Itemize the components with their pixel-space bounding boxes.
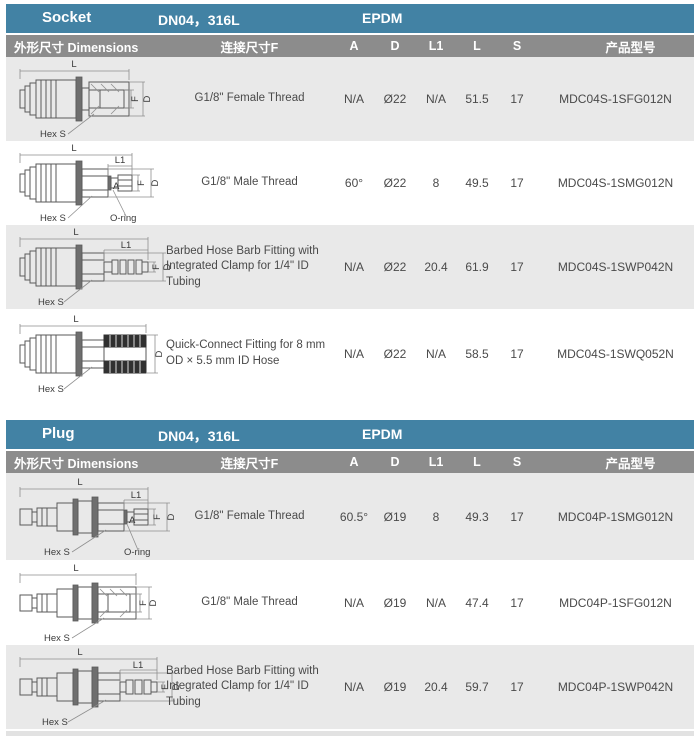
dim-label-d: D	[154, 350, 165, 357]
hex-s-label: Hex S	[40, 213, 66, 224]
technical-drawing-socket-female: L F D Hex S	[14, 57, 174, 141]
dim-label-f: F	[151, 264, 162, 270]
section-title: Plug	[42, 425, 75, 442]
socket-column-header: 外形尺寸 Dimensions 连接尺寸F A D L1 L S 产品型号	[6, 35, 694, 57]
cell-l1: N/A	[415, 596, 457, 610]
dim-label-a: A	[113, 181, 120, 192]
cell-a: 60°	[333, 176, 375, 190]
technical-drawing-socket-barb: L L1 F D Hex S	[14, 225, 174, 309]
cell-drawing: L L1 A F D Hex S O-ring	[6, 141, 166, 225]
table-row: L F D Hex S G1/8" Male Thread N/A Ø19 N/…	[6, 560, 694, 645]
cell-thread-desc: G1/8" Female Thread	[166, 509, 333, 525]
dim-label-l1: L1	[131, 490, 142, 501]
socket-section: Socket DN04，316L EPDM 外形尺寸 Dimensions 连接…	[6, 4, 694, 398]
seal-label: EPDM	[362, 426, 402, 442]
col-dimensions: 外形尺寸 Dimensions	[6, 37, 166, 56]
coupler-body	[20, 161, 82, 205]
dim-label-l: L	[77, 647, 82, 658]
col-a: A	[333, 39, 375, 53]
dim-label-l: L	[73, 227, 78, 238]
cell-l1: N/A	[415, 347, 457, 361]
coupler-body	[20, 667, 98, 707]
cell-d: Ø22	[375, 176, 415, 190]
cell-drawing: L L1 F D Hex S	[6, 645, 166, 729]
coupler-body	[20, 245, 82, 289]
next-section-edge	[6, 731, 694, 736]
socket-section-header: Socket DN04，316L EPDM	[6, 4, 694, 33]
technical-drawing-plug-barb: L L1 F D Hex S	[14, 645, 174, 729]
thread-desc: Quick-Connect Fitting for 8 mm OD × 5.5 …	[166, 338, 333, 369]
cell-s: 17	[497, 347, 537, 361]
cell-product-code: MDC04S-1SMG012N	[537, 176, 694, 190]
cell-l1: 8	[415, 510, 457, 524]
table-row: L L1 F D Hex S Barbed Hose Barb Fitting …	[6, 225, 694, 309]
col-a: A	[333, 455, 375, 469]
cell-d: Ø19	[375, 510, 415, 524]
cell-l: 49.5	[457, 176, 497, 190]
dim-label-l: L	[71, 59, 76, 70]
dim-label-l: L	[73, 314, 78, 325]
technical-drawing-socket-quick-connect: L D Hex S	[14, 312, 174, 396]
cell-d: Ø19	[375, 596, 415, 610]
cell-drawing: L F D Hex S	[6, 561, 166, 645]
dim-label-l: L	[73, 563, 78, 574]
thread-desc: Barbed Hose Barb Fitting with Integrated…	[166, 244, 333, 291]
col-product: 产品型号	[537, 453, 694, 472]
cell-thread-desc: Quick-Connect Fitting for 8 mm OD × 5.5 …	[166, 338, 333, 369]
hex-s-label: Hex S	[40, 129, 66, 140]
cell-d: Ø19	[375, 680, 415, 694]
table-row: L D Hex S Quick-Connect Fitting for 8 mm…	[6, 309, 694, 398]
cell-a: N/A	[333, 347, 375, 361]
cell-thread-desc: G1/8" Male Thread	[166, 175, 333, 191]
cell-drawing: L L1 A F D Hex S O-ring	[6, 475, 166, 559]
col-d: D	[375, 39, 415, 53]
cell-l1: 20.4	[415, 680, 457, 694]
cell-thread-desc: Barbed Hose Barb Fitting with Integrated…	[166, 664, 333, 711]
cell-a: N/A	[333, 260, 375, 274]
cell-a: 60.5°	[333, 510, 375, 524]
col-thread: 连接尺寸F	[166, 37, 333, 56]
datasheet-page: Socket DN04，316L EPDM 外形尺寸 Dimensions 连接…	[0, 0, 700, 739]
hex-s-label: Hex S	[38, 297, 64, 308]
coupler-body	[20, 583, 98, 623]
hex-s-label: Hex S	[44, 633, 70, 644]
cell-product-code: MDC04S-1SFG012N	[537, 92, 694, 106]
seal-label: EPDM	[362, 10, 402, 26]
dim-label-d: D	[148, 599, 159, 606]
thread-desc: Barbed Hose Barb Fitting with Integrated…	[166, 664, 333, 711]
dim-label-l1: L1	[121, 240, 132, 251]
thread-desc: G1/8" Male Thread	[201, 595, 298, 611]
col-s: S	[497, 455, 537, 469]
cell-drawing: L L1 F D Hex S	[6, 225, 166, 309]
coupler-body	[20, 497, 98, 537]
o-ring-label: O-ring	[110, 213, 136, 224]
thread-desc: G1/8" Female Thread	[195, 91, 305, 107]
plug-section: Plug DN04，316L EPDM 外形尺寸 Dimensions 连接尺寸…	[6, 420, 694, 729]
dim-label-a: A	[129, 515, 136, 526]
dim-label-f: F	[130, 96, 141, 102]
dim-label-d: D	[150, 179, 161, 186]
cell-l: 58.5	[457, 347, 497, 361]
dim-label-l1: L1	[115, 155, 126, 166]
cell-l1: N/A	[415, 92, 457, 106]
dim-label-d: D	[142, 95, 153, 102]
hex-s-label: Hex S	[38, 384, 64, 395]
cell-s: 17	[497, 680, 537, 694]
cell-l: 61.9	[457, 260, 497, 274]
dim-label-l: L	[77, 477, 82, 488]
cell-s: 17	[497, 596, 537, 610]
col-thread: 连接尺寸F	[166, 453, 333, 472]
cell-l: 47.4	[457, 596, 497, 610]
cell-l1: 20.4	[415, 260, 457, 274]
section-title: Socket	[42, 9, 91, 26]
col-product: 产品型号	[537, 37, 694, 56]
cell-s: 17	[497, 510, 537, 524]
cell-d: Ø22	[375, 260, 415, 274]
thread-desc: G1/8" Female Thread	[195, 509, 305, 525]
hex-s-label: Hex S	[44, 547, 70, 558]
cell-s: 17	[497, 92, 537, 106]
cell-l: 59.7	[457, 680, 497, 694]
cell-product-code: MDC04P-1SWP042N	[537, 680, 694, 694]
cell-product-code: MDC04S-1SWP042N	[537, 260, 694, 274]
cell-product-code: MDC04S-1SWQ052N	[537, 347, 694, 361]
spec-label: DN04，316L	[158, 426, 240, 446]
table-row: L L1 A F D Hex S O-ring G1/8" Male Threa…	[6, 141, 694, 225]
col-s: S	[497, 39, 537, 53]
cell-product-code: MDC04P-1SFG012N	[537, 596, 694, 610]
dim-label-l: L	[71, 143, 76, 154]
cell-d: Ø22	[375, 92, 415, 106]
thread-desc: G1/8" Male Thread	[201, 175, 298, 191]
cell-product-code: MDC04P-1SMG012N	[537, 510, 694, 524]
col-dimensions: 外形尺寸 Dimensions	[6, 453, 166, 472]
cell-a: N/A	[333, 92, 375, 106]
cell-drawing: L D Hex S	[6, 312, 166, 396]
technical-drawing-socket-male: L L1 A F D Hex S O-ring	[14, 141, 174, 225]
cell-a: N/A	[333, 596, 375, 610]
table-row: L F D Hex S G1/8" Female Thread N/A Ø22 …	[6, 57, 694, 141]
table-row: L L1 A F D Hex S O-ring G1/8" Female Thr…	[6, 473, 694, 560]
plug-section-header: Plug DN04，316L EPDM	[6, 420, 694, 449]
cell-thread-desc: Barbed Hose Barb Fitting with Integrated…	[166, 244, 333, 291]
cell-drawing: L F D Hex S	[6, 57, 166, 141]
dim-label-f: F	[136, 180, 147, 186]
col-l1: L1	[415, 455, 457, 469]
cell-l1: 8	[415, 176, 457, 190]
cell-a: N/A	[333, 680, 375, 694]
cell-l: 51.5	[457, 92, 497, 106]
col-l: L	[457, 39, 497, 53]
cell-s: 17	[497, 176, 537, 190]
cell-s: 17	[497, 260, 537, 274]
coupler-body	[20, 77, 82, 121]
technical-drawing-plug-oring: L L1 A F D Hex S O-ring	[14, 475, 174, 559]
plug-column-header: 外形尺寸 Dimensions 连接尺寸F A D L1 L S 产品型号	[6, 451, 694, 473]
table-row: L L1 F D Hex S Barbed Hose Barb Fitting …	[6, 645, 694, 729]
technical-drawing-plug-hex: L F D Hex S	[14, 561, 174, 645]
cell-l: 49.3	[457, 510, 497, 524]
hex-s-label: Hex S	[42, 717, 68, 728]
col-l: L	[457, 455, 497, 469]
col-d: D	[375, 455, 415, 469]
coupler-body	[20, 332, 82, 376]
dim-label-f: F	[152, 513, 163, 519]
cell-thread-desc: G1/8" Female Thread	[166, 91, 333, 107]
col-l1: L1	[415, 39, 457, 53]
dim-label-l1: L1	[133, 660, 144, 671]
cell-d: Ø22	[375, 347, 415, 361]
cell-thread-desc: G1/8" Male Thread	[166, 595, 333, 611]
spec-label: DN04，316L	[158, 10, 240, 30]
